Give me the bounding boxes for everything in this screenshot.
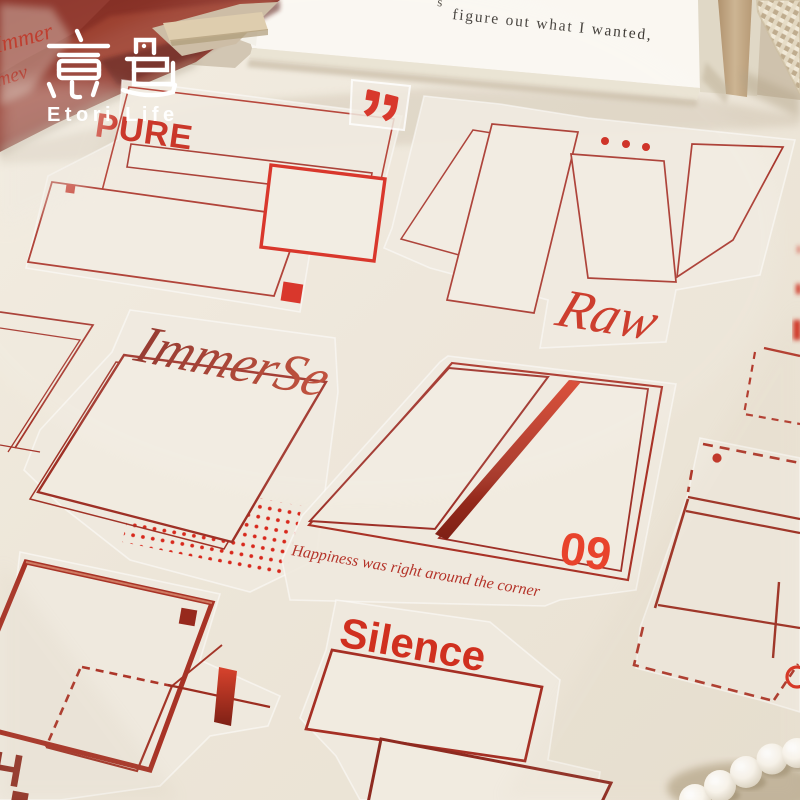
svg-text:Etori Life: Etori Life	[47, 104, 179, 126]
svg-text:09: 09	[556, 522, 615, 581]
